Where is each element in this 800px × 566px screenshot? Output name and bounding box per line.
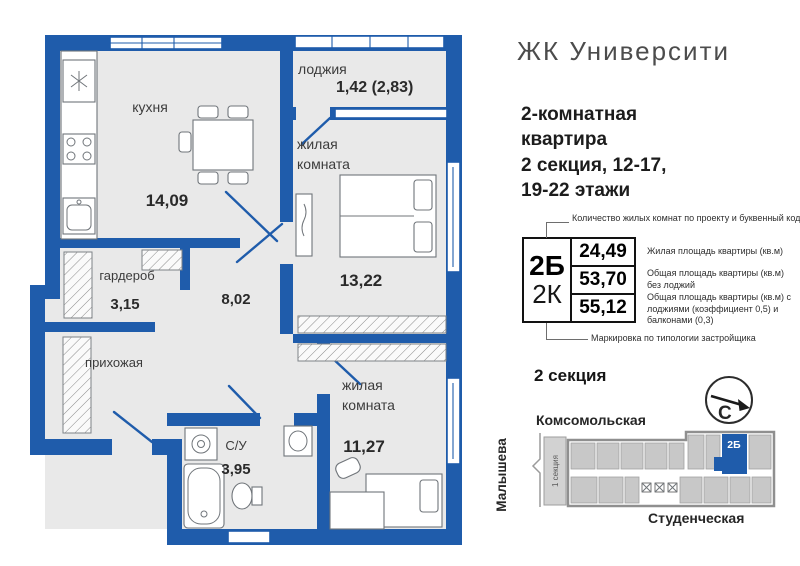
section-heading: 2 секция: [534, 366, 606, 386]
toilet-tank: [252, 487, 262, 505]
chair: [198, 106, 218, 118]
bathroom-label: С/У: [225, 438, 247, 453]
bedroom2-label-2: комната: [342, 397, 395, 413]
street-komsomolskaya: Комсомольская: [536, 412, 646, 428]
total-area-loggia-value: 55,12: [572, 295, 634, 321]
type-code-secondary: 2К: [532, 281, 562, 308]
type-code-primary: 2Б: [529, 252, 565, 280]
total-area-value: 53,70: [572, 267, 634, 295]
spec-code-cell: 2Б 2К: [524, 239, 572, 321]
kitchen-area: 14,09: [146, 191, 189, 210]
loggia-label: лоджия: [298, 61, 347, 77]
bathroom-area: 3,95: [221, 461, 250, 478]
section1-label: 1 секция: [551, 455, 560, 487]
floor-plan: лоджия 1,42 (2,83) кухня 14,09 жилая ком…: [30, 22, 470, 552]
toilet-icon: [232, 483, 252, 509]
chair: [179, 132, 191, 152]
pillow: [420, 480, 438, 512]
bottom-niche: [228, 531, 270, 543]
kitchen-sink-icon: [63, 198, 95, 234]
bedroom1-label-1: жилая: [297, 136, 338, 152]
desk: [330, 492, 384, 529]
bedroom2-label-1: жилая: [342, 377, 383, 393]
note-total-loggia: Общая площадь квартиры (кв.м) с лоджиями…: [647, 292, 800, 327]
dining-table: [193, 120, 253, 170]
highlighted-unit-label: 2Б: [727, 439, 741, 451]
tv-stand: [296, 194, 312, 256]
note-marking: Маркировка по типологии застройщика: [591, 333, 756, 345]
building-diagram: Малышева 1 секция 2Б: [492, 427, 784, 519]
bedroom1-label-2: комната: [297, 156, 350, 172]
pillow: [414, 222, 432, 252]
balcony-block-window: [335, 109, 447, 118]
note-living-area: Жилая площадь квартиры (кв.м): [647, 246, 799, 258]
compass: С: [701, 371, 759, 433]
annotation-line-bottom: [546, 323, 588, 340]
chair: [228, 106, 248, 118]
bedroom1-area: 13,22: [340, 271, 383, 290]
loggia-area: 1,42 (2,83): [336, 79, 413, 96]
wardrobe-area: 3,15: [110, 296, 139, 313]
stairs-elevator-icons: [642, 483, 677, 492]
kitchen-label: кухня: [132, 99, 168, 115]
street-malysheva: Малышева: [494, 438, 509, 512]
pillow: [414, 180, 432, 210]
compass-letter: С: [718, 403, 732, 424]
entry-label: прихожая: [85, 355, 143, 370]
street-edge-line: [533, 433, 540, 507]
spec-table: 2Б 2К 24,49 53,70 55,12: [522, 237, 636, 323]
chair: [198, 172, 218, 184]
annotation-line-top: [546, 222, 569, 238]
wardrobe-label: гардероб: [99, 268, 154, 283]
bedroom2-area: 11,27: [343, 437, 385, 456]
stove-icon: [63, 134, 95, 164]
living-area-value: 24,49: [572, 239, 634, 267]
project-title: ЖК Университи: [517, 36, 730, 67]
apartment-description: 2-комнатная квартира 2 секция, 12-17, 19…: [521, 102, 666, 204]
note-room-count: Количество жилых комнат по проекту и бук…: [572, 213, 800, 225]
washing-machine-icon: [185, 428, 217, 460]
note-total-area: Общая площадь квартиры (кв.м) без лоджий: [647, 268, 799, 291]
chair: [228, 172, 248, 184]
hall-area: 8,02: [221, 291, 250, 308]
spec-values: 24,49 53,70 55,12: [572, 239, 634, 321]
